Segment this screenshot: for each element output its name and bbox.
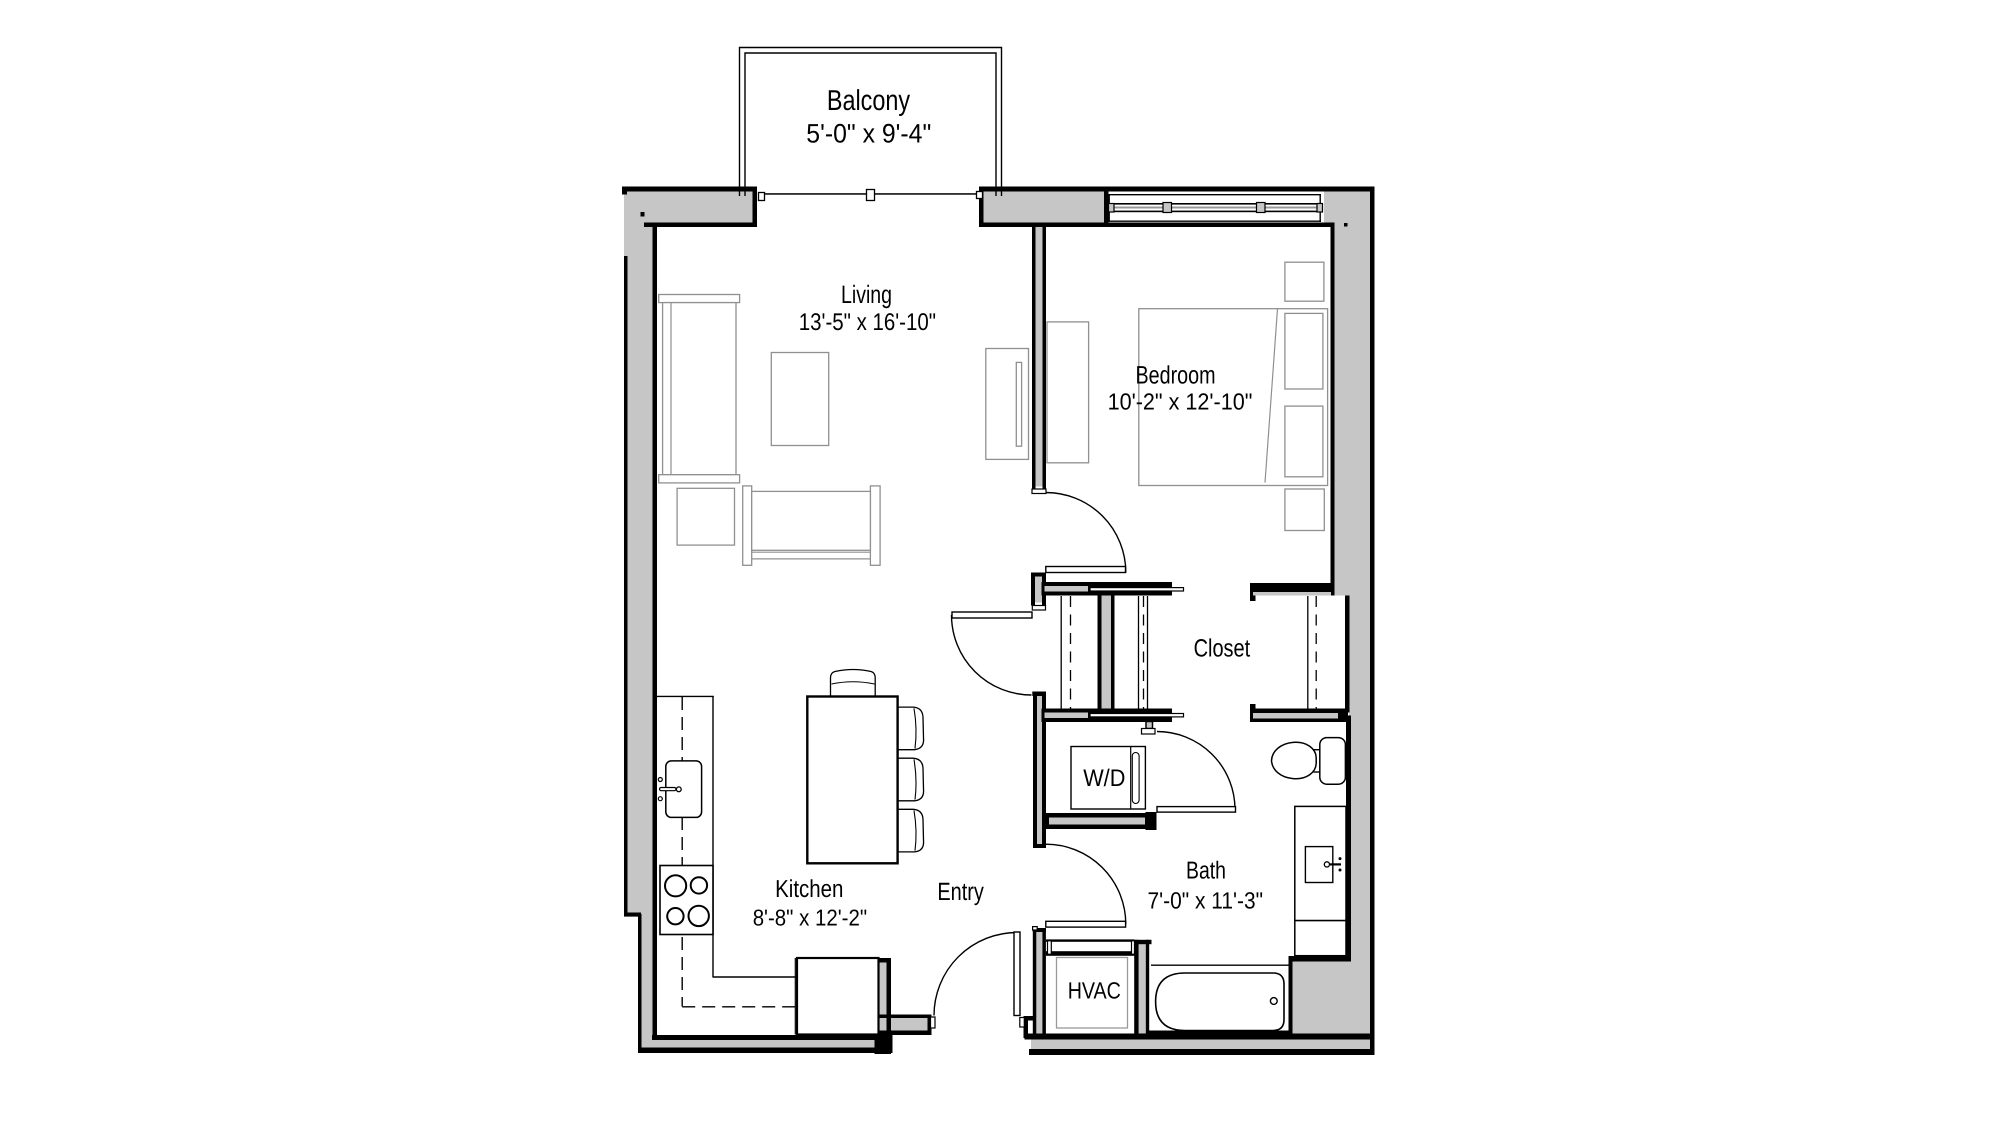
svg-text:Bedroom: Bedroom: [1136, 361, 1216, 389]
svg-text:10'-2" x 12'-10": 10'-2" x 12'-10": [1108, 389, 1253, 415]
svg-text:Balcony: Balcony: [827, 85, 911, 117]
svg-text:7'-0" x 11'-3": 7'-0" x 11'-3": [1148, 888, 1264, 914]
svg-text:Closet: Closet: [1194, 635, 1251, 663]
svg-text:8'-8" x 12'-2": 8'-8" x 12'-2": [753, 904, 867, 930]
svg-text:Kitchen: Kitchen: [775, 876, 843, 903]
svg-text:Entry: Entry: [937, 878, 984, 906]
svg-text:Living: Living: [841, 281, 892, 309]
svg-text:5'-0" x 9'-4": 5'-0" x 9'-4": [806, 118, 931, 148]
svg-text:W/D: W/D: [1083, 765, 1125, 792]
svg-text:Bath: Bath: [1186, 858, 1226, 885]
svg-text:HVAC: HVAC: [1068, 978, 1121, 1004]
svg-text:13'-5" x 16'-10": 13'-5" x 16'-10": [799, 309, 936, 336]
